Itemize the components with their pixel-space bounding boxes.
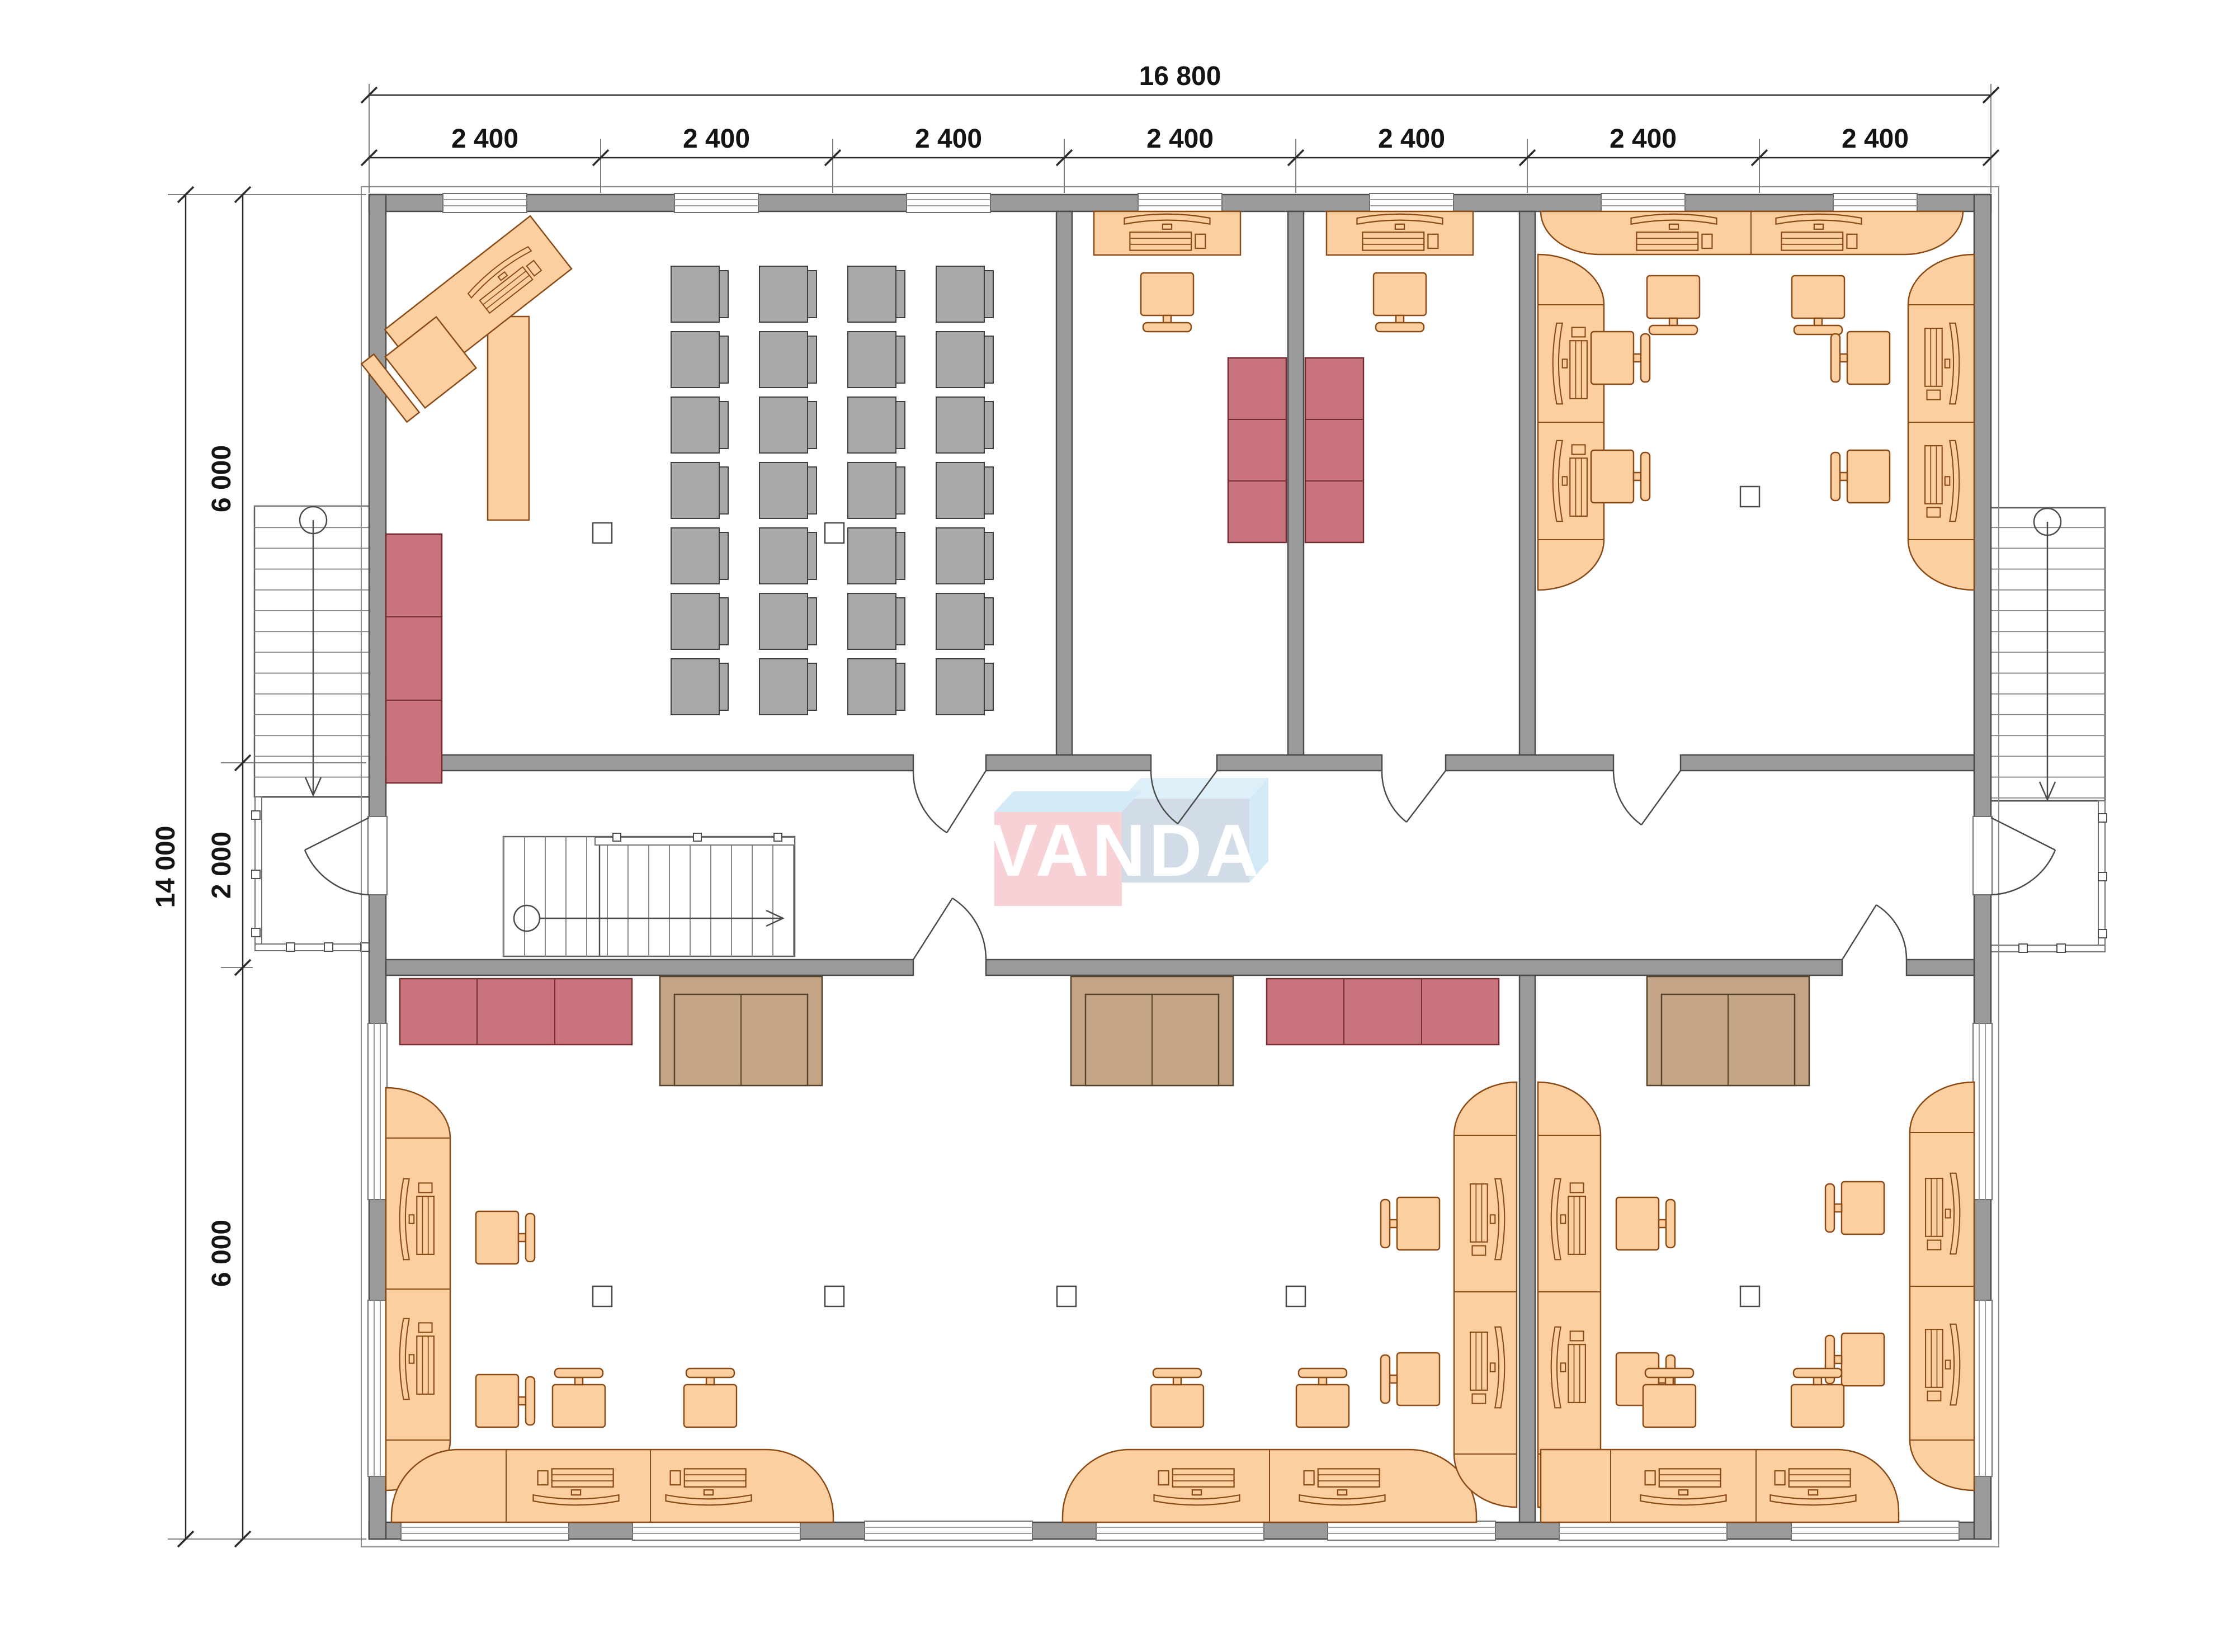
west-entrance-opening <box>368 816 387 895</box>
office-chair <box>1831 450 1890 503</box>
office-chair <box>476 1375 535 1427</box>
chair <box>848 266 905 322</box>
column <box>825 523 844 543</box>
dim-north-depth: 6 000 <box>207 445 237 512</box>
dim-bay-6: 2 400 <box>1610 124 1677 154</box>
office-chair <box>1647 276 1700 334</box>
dim-corridor-depth: 2 000 <box>207 832 237 899</box>
chair <box>759 332 817 388</box>
chair <box>671 528 728 584</box>
left-entry-porch <box>252 797 369 951</box>
chair <box>936 593 993 649</box>
sofa <box>1647 976 1809 1085</box>
column <box>1286 1286 1305 1306</box>
office-chair <box>1151 1368 1204 1427</box>
chair <box>671 462 728 518</box>
chair <box>671 266 728 322</box>
chair <box>848 659 905 715</box>
red-cabinet <box>400 979 632 1045</box>
column <box>1740 487 1759 507</box>
vanda-logo-watermark: VANDA <box>988 778 1268 906</box>
corridor-stair <box>503 833 795 956</box>
column <box>1740 1286 1759 1306</box>
chair <box>759 593 817 649</box>
sofa <box>1071 976 1233 1085</box>
dim-bay-2: 2 400 <box>683 124 750 154</box>
dim-bay-4: 2 400 <box>1146 124 1214 154</box>
chair <box>936 397 993 453</box>
chair <box>848 593 905 649</box>
chair <box>759 266 817 322</box>
partition-office2-northeast-room <box>1519 211 1535 755</box>
reception-desk-return <box>488 317 529 520</box>
chair <box>759 528 817 584</box>
office-chair <box>1141 273 1193 332</box>
logo-text: VANDA <box>988 809 1262 891</box>
east-entrance-opening <box>1973 816 1992 895</box>
column <box>593 1286 612 1306</box>
chair <box>759 397 817 453</box>
office-chair <box>1296 1368 1349 1427</box>
west-entrance-door <box>305 818 369 895</box>
chair <box>848 332 905 388</box>
center-counter-west <box>1454 1082 1517 1507</box>
column <box>593 523 612 543</box>
office-chair <box>1643 1368 1696 1427</box>
chair <box>759 462 817 518</box>
column <box>825 1286 844 1306</box>
dim-bay-7: 2 400 <box>1842 124 1909 154</box>
logo-top-band-right <box>1122 778 1268 799</box>
chair <box>671 593 728 649</box>
dim-south-depth: 6 000 <box>207 1220 237 1287</box>
sofa <box>660 976 822 1085</box>
chair <box>671 397 728 453</box>
office-chair <box>1591 450 1650 503</box>
dim-bay-3: 2 400 <box>915 124 982 154</box>
chair <box>848 462 905 518</box>
partition-classroom-office1 <box>1056 211 1072 755</box>
chair <box>936 659 993 715</box>
chair <box>848 397 905 453</box>
south-windows <box>401 1521 1959 1540</box>
office-chair <box>1616 1197 1675 1250</box>
dim-bay-1: 2 400 <box>451 124 518 154</box>
partition-south-rooms <box>1519 975 1535 1522</box>
chair <box>936 462 993 518</box>
office-chair <box>1825 1182 1884 1234</box>
column <box>1057 1286 1076 1306</box>
dim-total-width: 16 800 <box>1139 62 1221 91</box>
center-counter-east <box>1538 1082 1601 1507</box>
office-chair <box>1791 1368 1844 1427</box>
office-chair <box>476 1211 535 1264</box>
chair <box>671 332 728 388</box>
chair <box>759 659 817 715</box>
office-chair <box>1792 276 1844 334</box>
chair <box>936 528 993 584</box>
dim-bay-5: 2 400 <box>1378 124 1445 154</box>
chair <box>848 528 905 584</box>
office-chair <box>1381 1197 1440 1250</box>
red-cabinet <box>1267 979 1499 1045</box>
floor-plan-canvas: VANDA <box>0 0 2237 1652</box>
right-entry-porch <box>1991 801 2107 952</box>
office2-red-cabinet <box>1305 358 1363 542</box>
office-chair <box>1591 332 1650 384</box>
chair <box>936 266 993 322</box>
office-chair <box>1381 1353 1440 1405</box>
left-external-stair <box>254 506 372 797</box>
office-chair <box>1374 273 1426 332</box>
east-entrance-door <box>1991 818 2055 895</box>
office-chair <box>553 1368 605 1427</box>
top-counter <box>1541 211 1963 254</box>
dim-total-height: 14 000 <box>151 826 181 908</box>
office1-red-cabinet <box>1228 358 1286 542</box>
chair <box>671 659 728 715</box>
chair <box>936 332 993 388</box>
office-chair <box>684 1368 737 1427</box>
partition-office1-office2 <box>1288 211 1304 755</box>
office-chair <box>1831 332 1890 384</box>
right-external-stair <box>1990 508 2105 801</box>
classroom-red-cabinet <box>386 534 442 783</box>
floor-plan-drawing: VANDA <box>0 0 2237 1652</box>
